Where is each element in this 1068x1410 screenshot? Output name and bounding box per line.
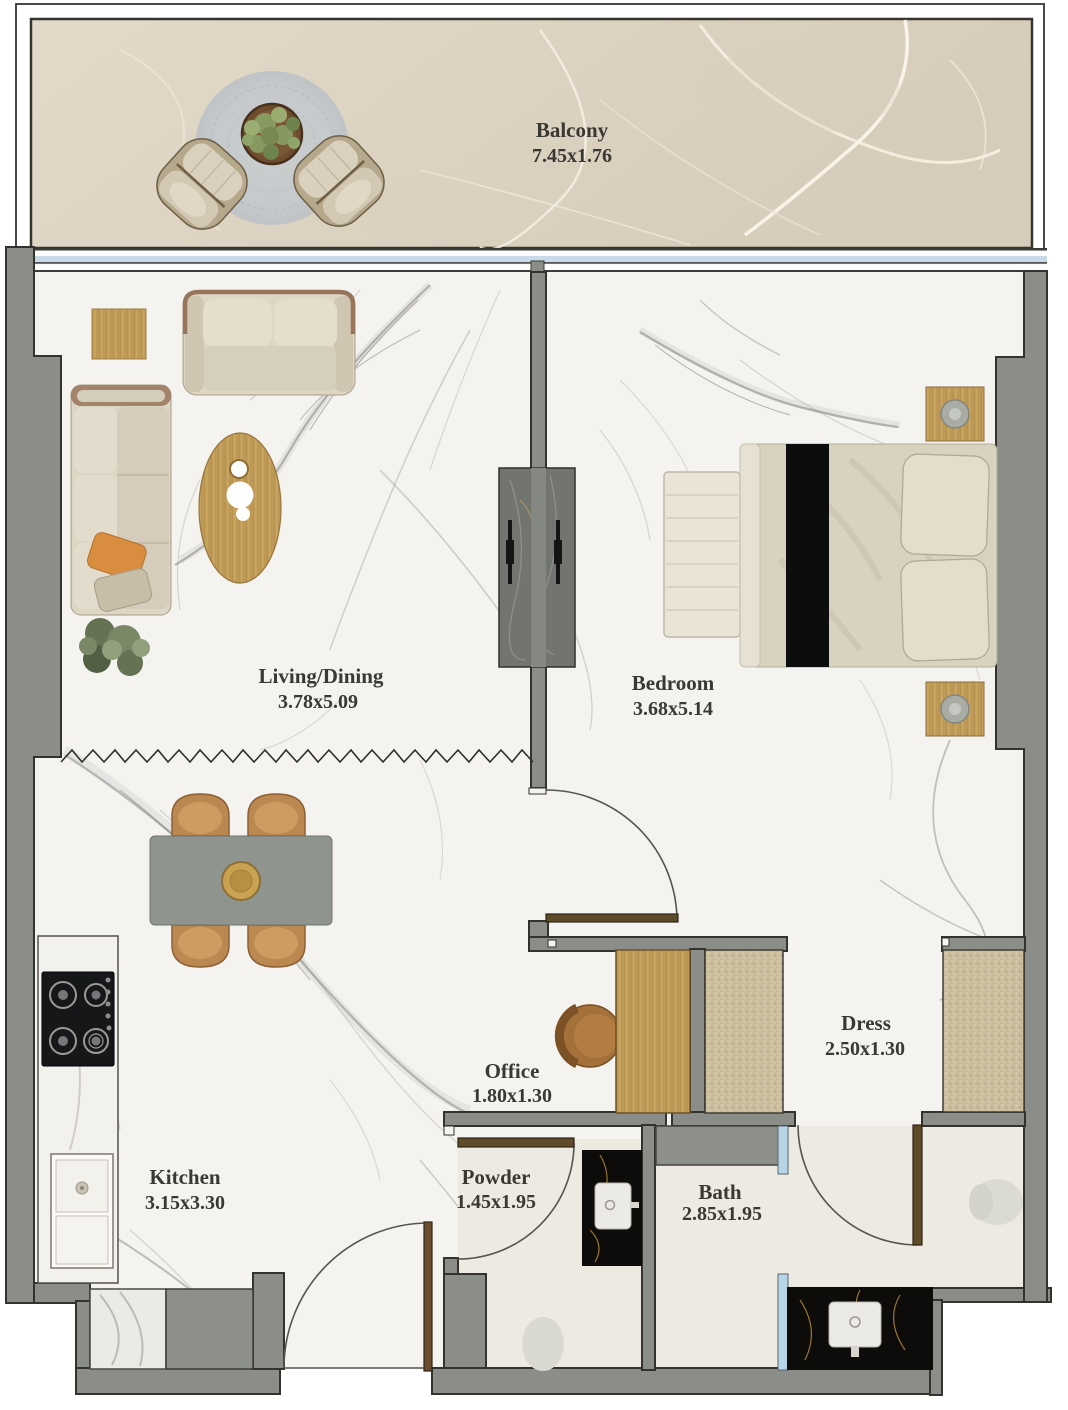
svg-text:Living/Dining: Living/Dining (259, 664, 384, 688)
svg-text:Kitchen: Kitchen (149, 1165, 220, 1189)
svg-text:Bedroom: Bedroom (632, 671, 715, 695)
svg-text:Office: Office (485, 1059, 540, 1083)
svg-text:1.80x1.30: 1.80x1.30 (472, 1085, 552, 1107)
svg-text:3.15x3.30: 3.15x3.30 (145, 1192, 225, 1214)
svg-text:Bath: Bath (698, 1180, 742, 1204)
svg-text:3.68x5.14: 3.68x5.14 (633, 698, 713, 720)
svg-text:Dress: Dress (841, 1011, 891, 1035)
svg-text:2.85x1.95: 2.85x1.95 (682, 1203, 762, 1225)
svg-text:Powder: Powder (462, 1165, 531, 1189)
svg-text:7.45x1.76: 7.45x1.76 (532, 145, 612, 167)
svg-text:3.78x5.09: 3.78x5.09 (278, 691, 358, 713)
svg-text:Balcony: Balcony (536, 118, 609, 142)
svg-text:2.50x1.30: 2.50x1.30 (825, 1038, 905, 1060)
svg-text:1.45x1.95: 1.45x1.95 (456, 1191, 536, 1213)
